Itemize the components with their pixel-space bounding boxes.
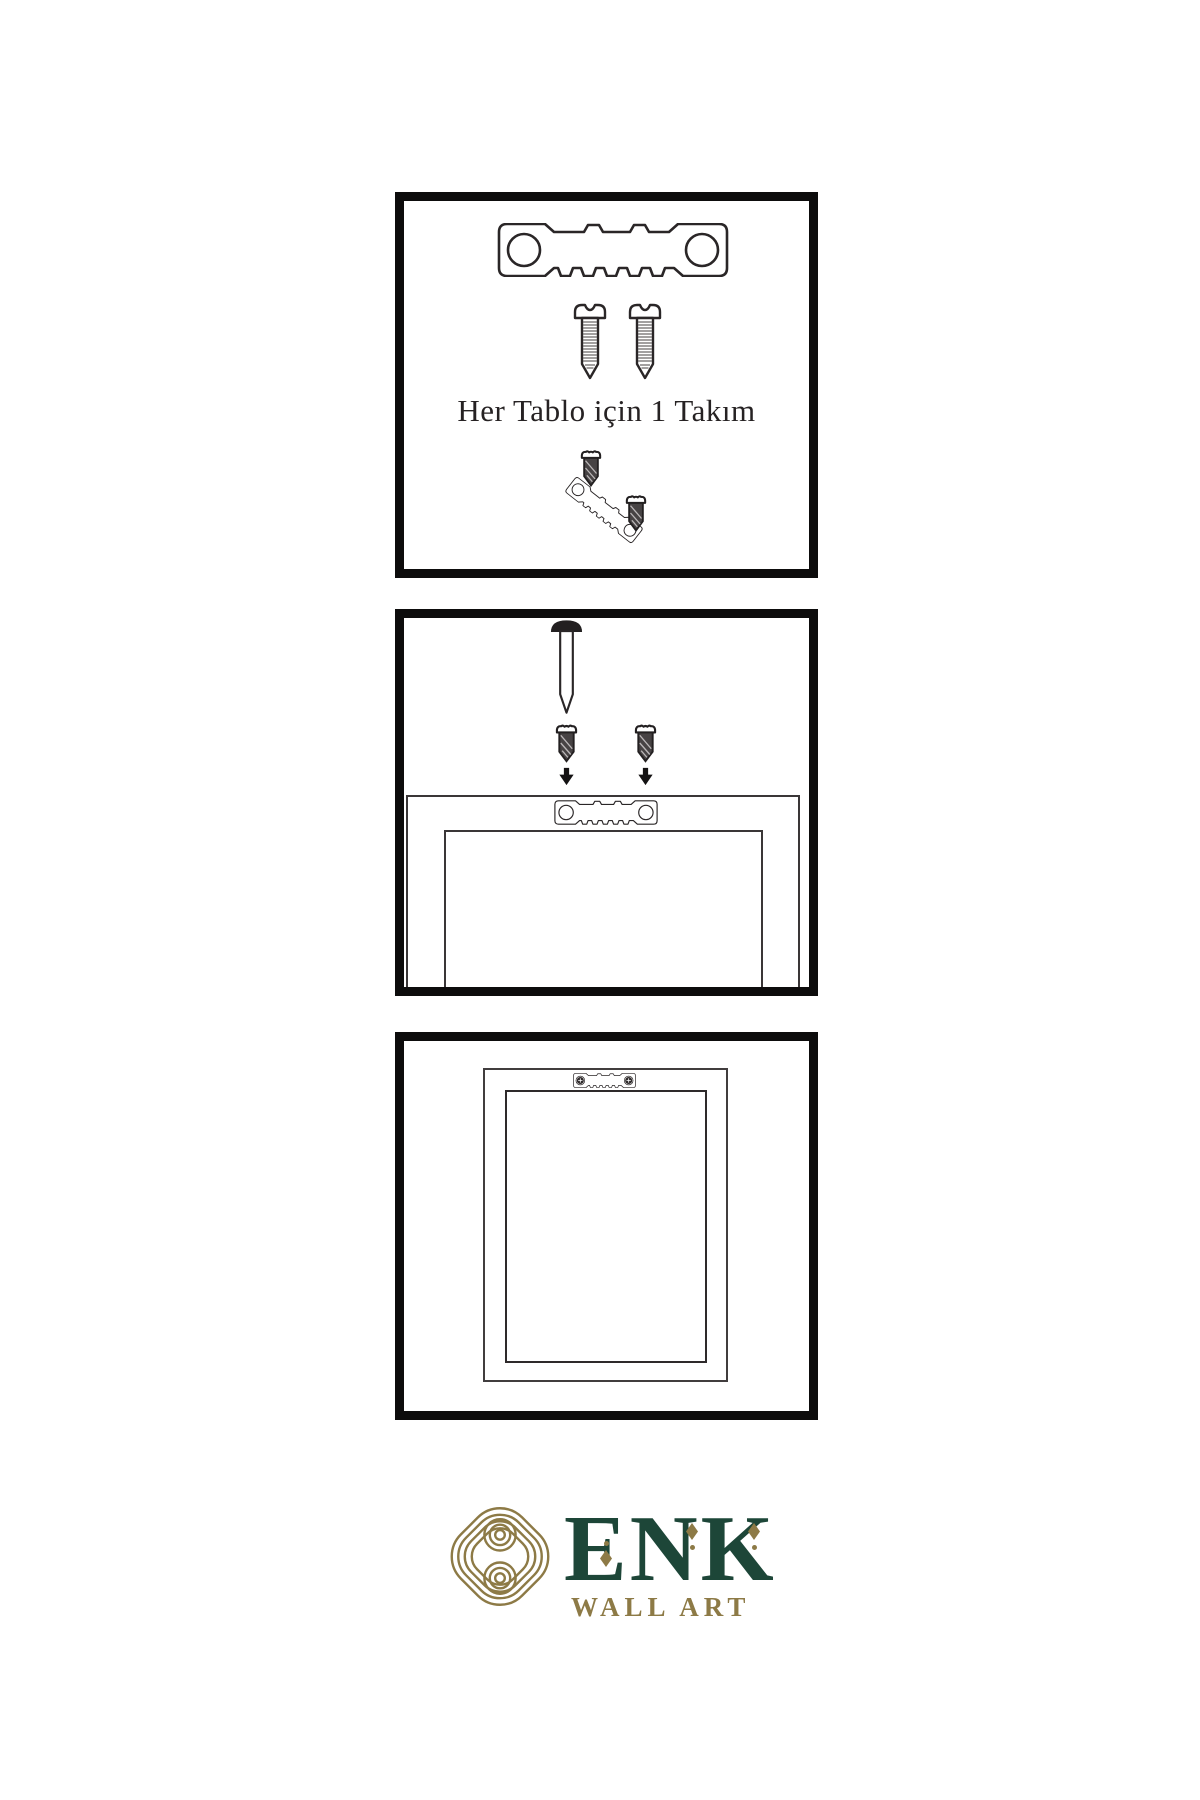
screw-dark-icon [555, 722, 578, 764]
frame-back-inner-edge [444, 830, 763, 996]
brand-subtitle: WALL ART [571, 1592, 750, 1623]
screw-dark-icon [634, 722, 657, 764]
gold-dot-accent [604, 1541, 609, 1546]
arrow-down-icon [559, 765, 574, 788]
screw-icon [627, 302, 663, 382]
wall-nail-icon [549, 617, 584, 717]
sawtooth-hanger-icon [497, 223, 729, 277]
step1-caption: Her Tablo için 1 Takım [404, 393, 809, 429]
gold-dot-accent [690, 1545, 695, 1550]
brand-name: ENK [564, 1506, 774, 1592]
step3-hung-frame-panel [395, 1032, 818, 1420]
sawtooth-hanger-icon [554, 800, 658, 825]
screw-icon [572, 302, 608, 382]
screw-dark-icon [625, 492, 647, 534]
frame-inner-edge [505, 1090, 707, 1363]
knot-logo-icon [437, 1488, 563, 1625]
mounted-sawtooth-hanger-icon [573, 1072, 636, 1089]
step2-mounting-panel [395, 609, 818, 996]
gold-dot-accent [752, 1545, 757, 1550]
step1-hardware-panel: Her Tablo için 1 Takım [395, 192, 818, 578]
arrow-down-icon [638, 765, 653, 788]
